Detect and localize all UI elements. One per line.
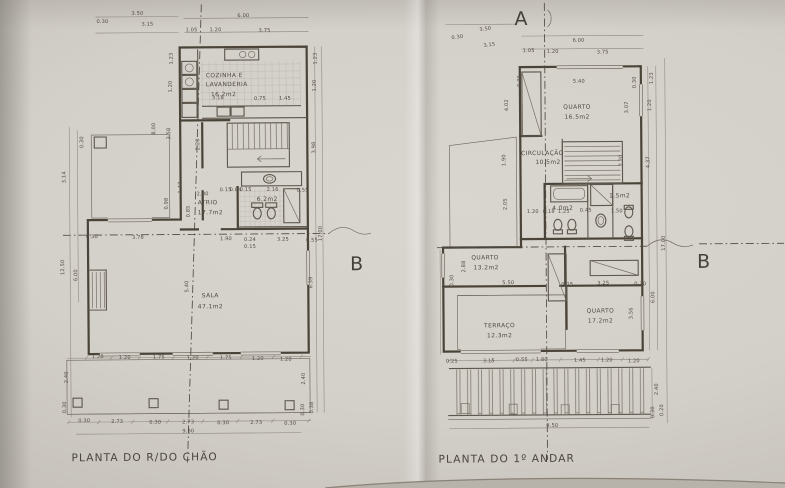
dimension-label: 0.30: [451, 34, 464, 41]
dimension-label: 2.00: [197, 191, 209, 197]
dimension-label: 3.75: [597, 49, 609, 55]
dimension-label: 0.55: [297, 188, 309, 194]
room-label: ATRIO: [198, 200, 218, 206]
photographed-blueprint-sheet: A B B PLANTA DO R/DO CHÃO PLANTA DO 1º A…: [0, 0, 785, 488]
dimension-label: 0.30: [650, 406, 656, 418]
room-label: QUARTO: [471, 255, 499, 261]
room-label: 1.5m2: [609, 193, 630, 199]
room-label: CIRCULAÇÃO: [521, 150, 564, 157]
dimension-label: 2.73: [182, 419, 194, 425]
roof-hatch: [449, 137, 517, 247]
dimension-label: 1.20: [280, 357, 292, 363]
dimension-label: 2.20: [195, 138, 201, 150]
room-label: 17.7m2: [198, 210, 223, 216]
fireplace: [88, 270, 106, 310]
dimension-label: 5.40: [184, 280, 190, 292]
dimension-label: 0.30: [634, 281, 646, 287]
dimension-label: 1.20: [527, 209, 539, 215]
dimension-label: 0.15: [240, 187, 252, 193]
section-marker-b-left: B: [350, 253, 364, 275]
dimension-label: 1.75: [220, 355, 232, 361]
dimension-label: 17.00: [661, 235, 667, 250]
room-label: 6.2m2: [257, 197, 278, 203]
room-label: TERRAÇO: [483, 323, 515, 329]
room-label: 4.0m2: [552, 206, 573, 212]
dimension-label: 1.20: [187, 355, 199, 361]
terrace-tiles: [457, 295, 565, 350]
dimension-label: 6.00: [650, 291, 656, 303]
dimension-label: 9.80: [182, 428, 194, 434]
dimension-label: 1.20: [601, 357, 613, 363]
dimension-label: 0.30: [517, 75, 523, 87]
room-label: 12.3m2: [487, 333, 512, 339]
dimension-label: 0.30: [79, 136, 85, 148]
dimension-label: 3.25: [597, 280, 609, 286]
right-plan-title: PLANTA DO 1º ANDAR: [438, 453, 575, 466]
dimension-label: 0.30: [217, 420, 229, 426]
floor-plan-drawing: A B B PLANTA DO R/DO CHÃO PLANTA DO 1º A…: [0, 0, 785, 488]
dimension-label: 0.30: [300, 404, 306, 416]
dimension-label: 2.20: [618, 154, 624, 166]
dimension-label: 1.20: [312, 80, 318, 92]
staircase: [227, 123, 289, 167]
dimension-label: 6.00: [237, 13, 249, 19]
dimension-label: 0.30: [284, 421, 296, 427]
room-label: 13.2m2: [473, 265, 498, 271]
dimension-label: 3.75: [259, 28, 271, 34]
dimension-label: 8.00: [151, 123, 157, 135]
side-terrace-tiles: [91, 135, 170, 219]
dimension-label: 6.00: [573, 38, 585, 44]
dimension-label: 0.30: [62, 401, 68, 413]
dimension-label: 1.20: [252, 356, 264, 362]
dimension-label: 2.88: [461, 260, 467, 272]
dimension-label: 1.45: [279, 96, 291, 102]
dimension-label: 0.98: [164, 198, 170, 210]
dimension-label: 1.45: [574, 358, 586, 364]
dimension-label: 0.85: [186, 205, 192, 217]
dimension-label: 2.73: [250, 420, 262, 426]
dimension-label: 4.02: [504, 99, 510, 111]
room-label: COZINHA E: [206, 73, 243, 79]
dimension-label: 3.58: [166, 128, 172, 140]
section-b-line-right: [437, 243, 784, 247]
dimension-label: 1.90: [220, 236, 232, 242]
dimension-label: 0.20: [659, 404, 665, 416]
dimension-label: 3.07: [624, 101, 630, 113]
dimension-label: 1.23: [169, 53, 175, 65]
dimension-label: 1.23: [649, 72, 655, 84]
dimension-label: 0.30: [78, 418, 90, 424]
wardrobes: [548, 253, 638, 301]
room-label: 17.2m2: [588, 318, 613, 324]
dimension-label: 3.15: [141, 22, 153, 28]
dimension-label: 6.39: [308, 277, 314, 289]
dimension-label: 1.23: [313, 53, 319, 65]
dimension-label: 2.40: [654, 383, 660, 395]
pergola-slats: [448, 367, 651, 419]
dimension-label: 5.50: [502, 280, 514, 286]
dimension-label: 1.05: [523, 48, 535, 54]
dimension-label: 1.20: [547, 49, 559, 55]
front-terrace-tiles: [67, 359, 310, 415]
dimension-label: 5.40: [573, 79, 585, 85]
dimension-label: 3.98: [311, 142, 317, 154]
dimension-label: 1.20: [628, 358, 640, 364]
stair-void: [522, 72, 541, 136]
room-label: 47.1m2: [198, 304, 223, 310]
dimension-label: 2.40: [301, 373, 307, 385]
room-label: LAVANDERIA: [206, 82, 248, 88]
dimension-label: 0.30: [632, 76, 638, 88]
dimension-label: 6.00: [73, 269, 79, 281]
dimension-label: 1.20: [210, 27, 222, 33]
staircase-first: [562, 141, 622, 183]
terrace-columns: [73, 397, 294, 412]
room-label: SALA: [202, 293, 219, 299]
dimension-label: 1.20: [119, 355, 131, 361]
dimension-label: 1.47: [178, 181, 184, 193]
section-b-line-left: [63, 233, 329, 235]
dimension-label: 0.30: [96, 19, 108, 25]
dimension-label: 0.24: [244, 237, 256, 243]
dimension-label: 3.14: [61, 171, 67, 183]
dimension-label: 3.78: [132, 235, 144, 241]
room-label: QUARTO: [563, 105, 591, 111]
room-label: 16.5m2: [564, 115, 589, 121]
dimension-label: 0.30: [149, 420, 161, 426]
dimension-label: 3.50: [131, 11, 143, 17]
dimension-label: 12.50: [60, 260, 66, 275]
dimension-label: 0.25: [446, 359, 458, 365]
dimension-label: 0.45: [580, 208, 592, 214]
dimension-label: 3.56: [628, 307, 634, 319]
section-lines: [61, 0, 785, 463]
dimension-label: 0.75: [254, 96, 266, 102]
dimension-label: 0.15: [561, 282, 573, 288]
dimension-label: 0.30: [449, 275, 455, 287]
dimension-label: 1.80: [536, 357, 548, 363]
dimension-label: 1.20: [647, 99, 653, 111]
dimension-label: 3.25: [277, 237, 289, 243]
dimension-label: 0.30: [86, 234, 98, 240]
dimension-label: 1.20: [168, 81, 174, 93]
dimension-label: 0.15: [244, 244, 256, 250]
dimension-label: 3.50: [479, 26, 492, 33]
room-label: QUARTO: [587, 308, 615, 314]
dimension-label: 3.15: [483, 358, 495, 364]
room-label: 16.2m2: [211, 92, 236, 98]
dimension-label: 0.55: [516, 357, 528, 363]
dimension-label: 2.40: [64, 371, 70, 383]
dimension-label: 4.37: [645, 156, 651, 168]
section-marker-b-right: B: [697, 251, 711, 273]
section-marker-a: A: [514, 8, 528, 30]
dimension-label: 1.05: [186, 27, 198, 33]
dimension-label: 0.55: [306, 238, 318, 244]
dimension-label: 17.00: [318, 226, 324, 241]
dimension-label: 0.38: [309, 402, 315, 414]
dimension-label: 1.75: [153, 355, 165, 361]
dimension-label: 1.20: [92, 354, 104, 360]
dimension-label: 3.15: [483, 42, 496, 49]
dimension-label: 9.50: [546, 423, 558, 429]
left-plan-title: PLANTA DO R/DO CHÃO: [71, 450, 217, 464]
dimension-label: 1.90: [501, 154, 507, 166]
dimension-label: 1.50: [611, 208, 623, 214]
dimension-label: 2.16: [267, 187, 279, 193]
dimension-label: 2.73: [111, 419, 123, 425]
room-label: 10.5m2: [535, 160, 560, 166]
terrace-column: [94, 137, 106, 148]
dimension-label: 2.05: [503, 198, 509, 210]
